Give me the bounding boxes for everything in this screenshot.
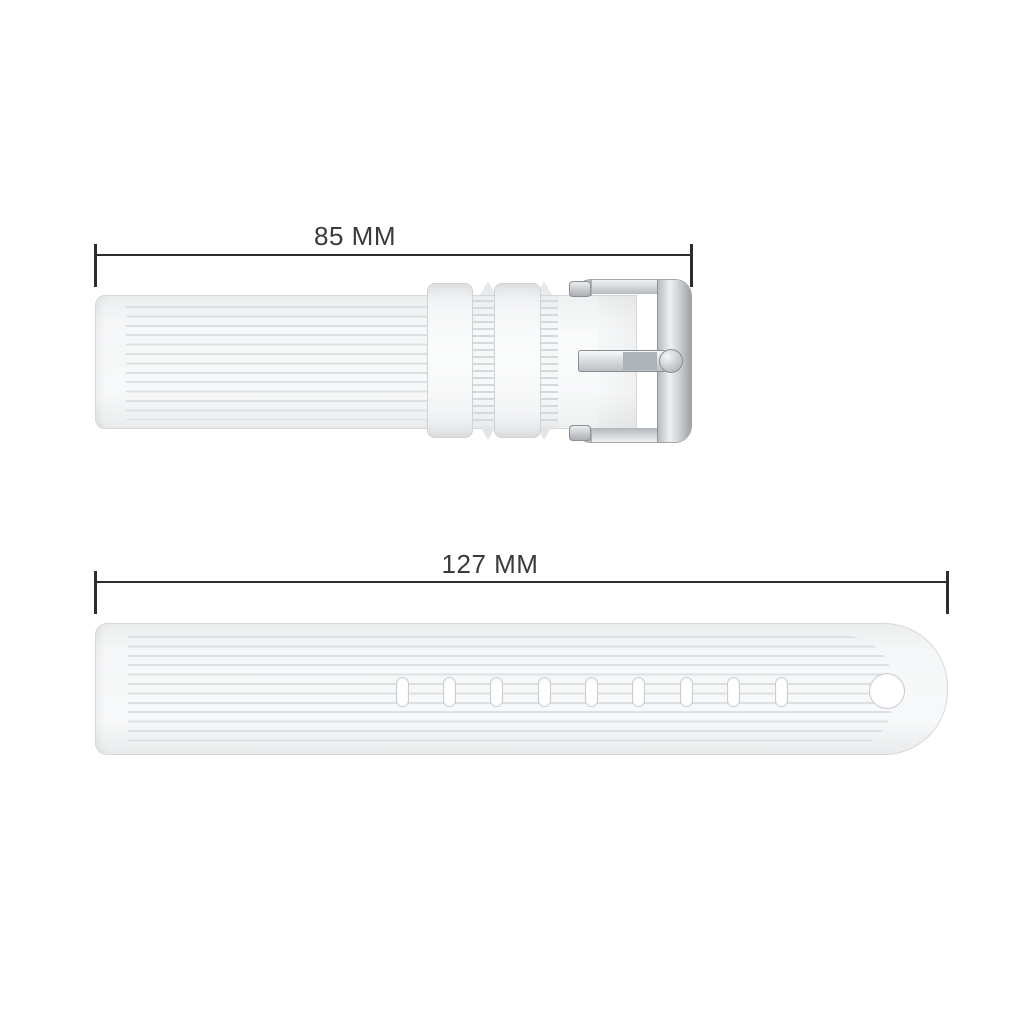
strap-slot: [490, 677, 503, 707]
strap-slot: [632, 677, 645, 707]
product-diagram: 85 MM 127 MM: [0, 0, 1024, 1024]
dimension-tick-left-85mm: [94, 244, 97, 287]
short-strap-ribs-texture: [126, 306, 428, 420]
strap-tail-rib-strip: [473, 300, 495, 426]
dimension-label-85mm: 85 MM: [56, 221, 654, 251]
strap-slot: [443, 677, 456, 707]
strap-keeper-2: [494, 283, 541, 438]
strap-slot: [585, 677, 598, 707]
dimension-line-127mm: [95, 581, 949, 583]
dimension-tick-left-127mm: [94, 571, 97, 614]
buckle-prong-pivot: [659, 349, 683, 373]
buckle-hinge-cap-top: [569, 281, 591, 297]
strap-slot: [775, 677, 788, 707]
strap-slot: [396, 677, 409, 707]
buckle-hinge-cap-bottom: [569, 425, 591, 441]
strap-keeper-1: [427, 283, 473, 438]
strap-round-hole: [869, 673, 905, 709]
strap-slot: [727, 677, 740, 707]
strap-slot: [680, 677, 693, 707]
dimension-line-85mm: [95, 254, 693, 256]
dimension-tick-right-127mm: [946, 571, 949, 614]
dimension-label-127mm: 127 MM: [63, 549, 917, 579]
buckle-prong-shade: [623, 352, 657, 370]
strap-slot: [538, 677, 551, 707]
